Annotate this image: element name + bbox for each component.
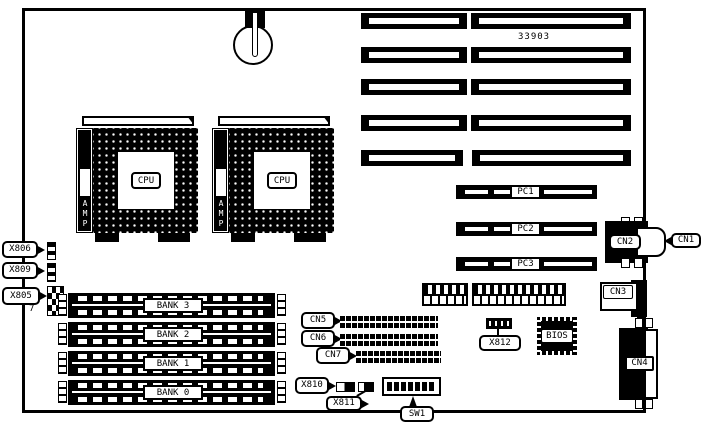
amp-bar: AMP — [212, 128, 229, 233]
cn7-header — [356, 351, 441, 363]
amp-brand-label: AMP — [217, 199, 225, 229]
isa-slot-segment — [472, 150, 631, 166]
cn2-label: CN2 — [609, 234, 641, 250]
cn5-header — [340, 316, 438, 328]
pci-slot-label: PC1 — [511, 186, 540, 198]
pci-slot-label: PC3 — [511, 258, 540, 270]
cpu-label: CPU — [131, 172, 161, 189]
cn3-label: CN3 — [603, 285, 633, 299]
x806-callout: X806 — [2, 241, 38, 258]
bank-label: BANK 1 — [143, 356, 203, 371]
simm-clip — [58, 294, 67, 316]
cn6-header — [340, 334, 438, 346]
terminal-block — [422, 283, 468, 306]
simm-bank-0: BANK 0 — [68, 380, 275, 405]
screw-tab — [645, 318, 653, 328]
simm-clip — [58, 381, 67, 403]
isa-slot-segment — [361, 47, 467, 63]
isa-slot-segment — [471, 47, 631, 63]
isa-slot-segment — [361, 115, 467, 131]
amp-bar: AMP — [76, 128, 93, 233]
cn6-callout: CN6 — [301, 330, 335, 347]
simm-clip — [58, 352, 67, 374]
screw-tab — [621, 258, 630, 268]
sw1-label: SW1 — [400, 406, 434, 422]
x805-callout: X805 — [2, 287, 40, 305]
simm-clip — [277, 352, 286, 374]
screw-tab — [645, 399, 653, 409]
bios-chip: BIOS — [537, 317, 577, 355]
key-shaft-icon — [252, 12, 258, 57]
pci-slot-pc2: PC2 — [456, 222, 597, 236]
isa-slot-segment — [361, 13, 467, 29]
x806-jumper — [47, 242, 56, 260]
isa-slot-segment — [471, 115, 631, 131]
cpu-socket-2: AMP CPU — [212, 110, 334, 242]
cpu-socket-1: AMP CPU — [76, 110, 198, 242]
x812-callout: X812 — [479, 335, 521, 351]
simm-clip — [277, 294, 286, 316]
cn3-body: CN3 — [600, 282, 638, 311]
x811-callout: X811 — [326, 396, 362, 411]
screw-tab — [634, 258, 643, 268]
cpu-label: CPU — [267, 172, 297, 189]
zif-lever — [82, 116, 194, 126]
simm-clip — [58, 323, 67, 345]
simm-clip — [277, 323, 286, 345]
simm-bank-2: BANK 2 — [68, 322, 275, 347]
pci-slot-pc1: PC1 — [456, 185, 597, 199]
bios-label: BIOS — [541, 329, 573, 343]
sw1-dip-switch — [382, 377, 441, 396]
cn7-callout: CN7 — [316, 347, 350, 364]
terminal-block — [472, 283, 566, 306]
cn5-callout: CN5 — [301, 312, 335, 329]
simm-clip — [277, 381, 286, 403]
simm-bank-3: BANK 3 — [68, 293, 275, 318]
isa-slot-segment — [361, 79, 467, 95]
isa-slot-segment — [361, 150, 463, 166]
part-number: 33903 — [518, 32, 550, 42]
pci-slot-pc3: PC3 — [456, 257, 597, 271]
screw-tab — [635, 399, 643, 409]
cn1-callout: CN1 — [671, 233, 701, 248]
x809-callout: X809 — [2, 262, 38, 279]
screw-tab — [635, 318, 643, 328]
pci-slot-label: PC2 — [511, 223, 540, 235]
cn4-label: CN4 — [625, 356, 654, 371]
x809-jumper — [47, 263, 56, 282]
bank-label: BANK 0 — [143, 385, 203, 400]
bank-label: BANK 2 — [143, 327, 203, 342]
bank-label: BANK 3 — [143, 298, 203, 313]
simm-bank-1: BANK 1 — [68, 351, 275, 376]
pin7-label: 7 — [29, 304, 34, 314]
x812-header — [486, 318, 512, 329]
zif-lever — [218, 116, 330, 126]
pga-pin-grid: CPU — [229, 128, 334, 233]
x810-jumper — [336, 382, 355, 392]
x810-callout: X810 — [295, 377, 329, 394]
isa-slot-segment — [471, 13, 631, 29]
motherboard-diagram: 33903 AMP CPU AMP CPU — [0, 0, 703, 429]
isa-slot-segment — [471, 79, 631, 95]
pga-pin-grid: CPU — [93, 128, 198, 233]
amp-brand-label: AMP — [81, 199, 89, 229]
